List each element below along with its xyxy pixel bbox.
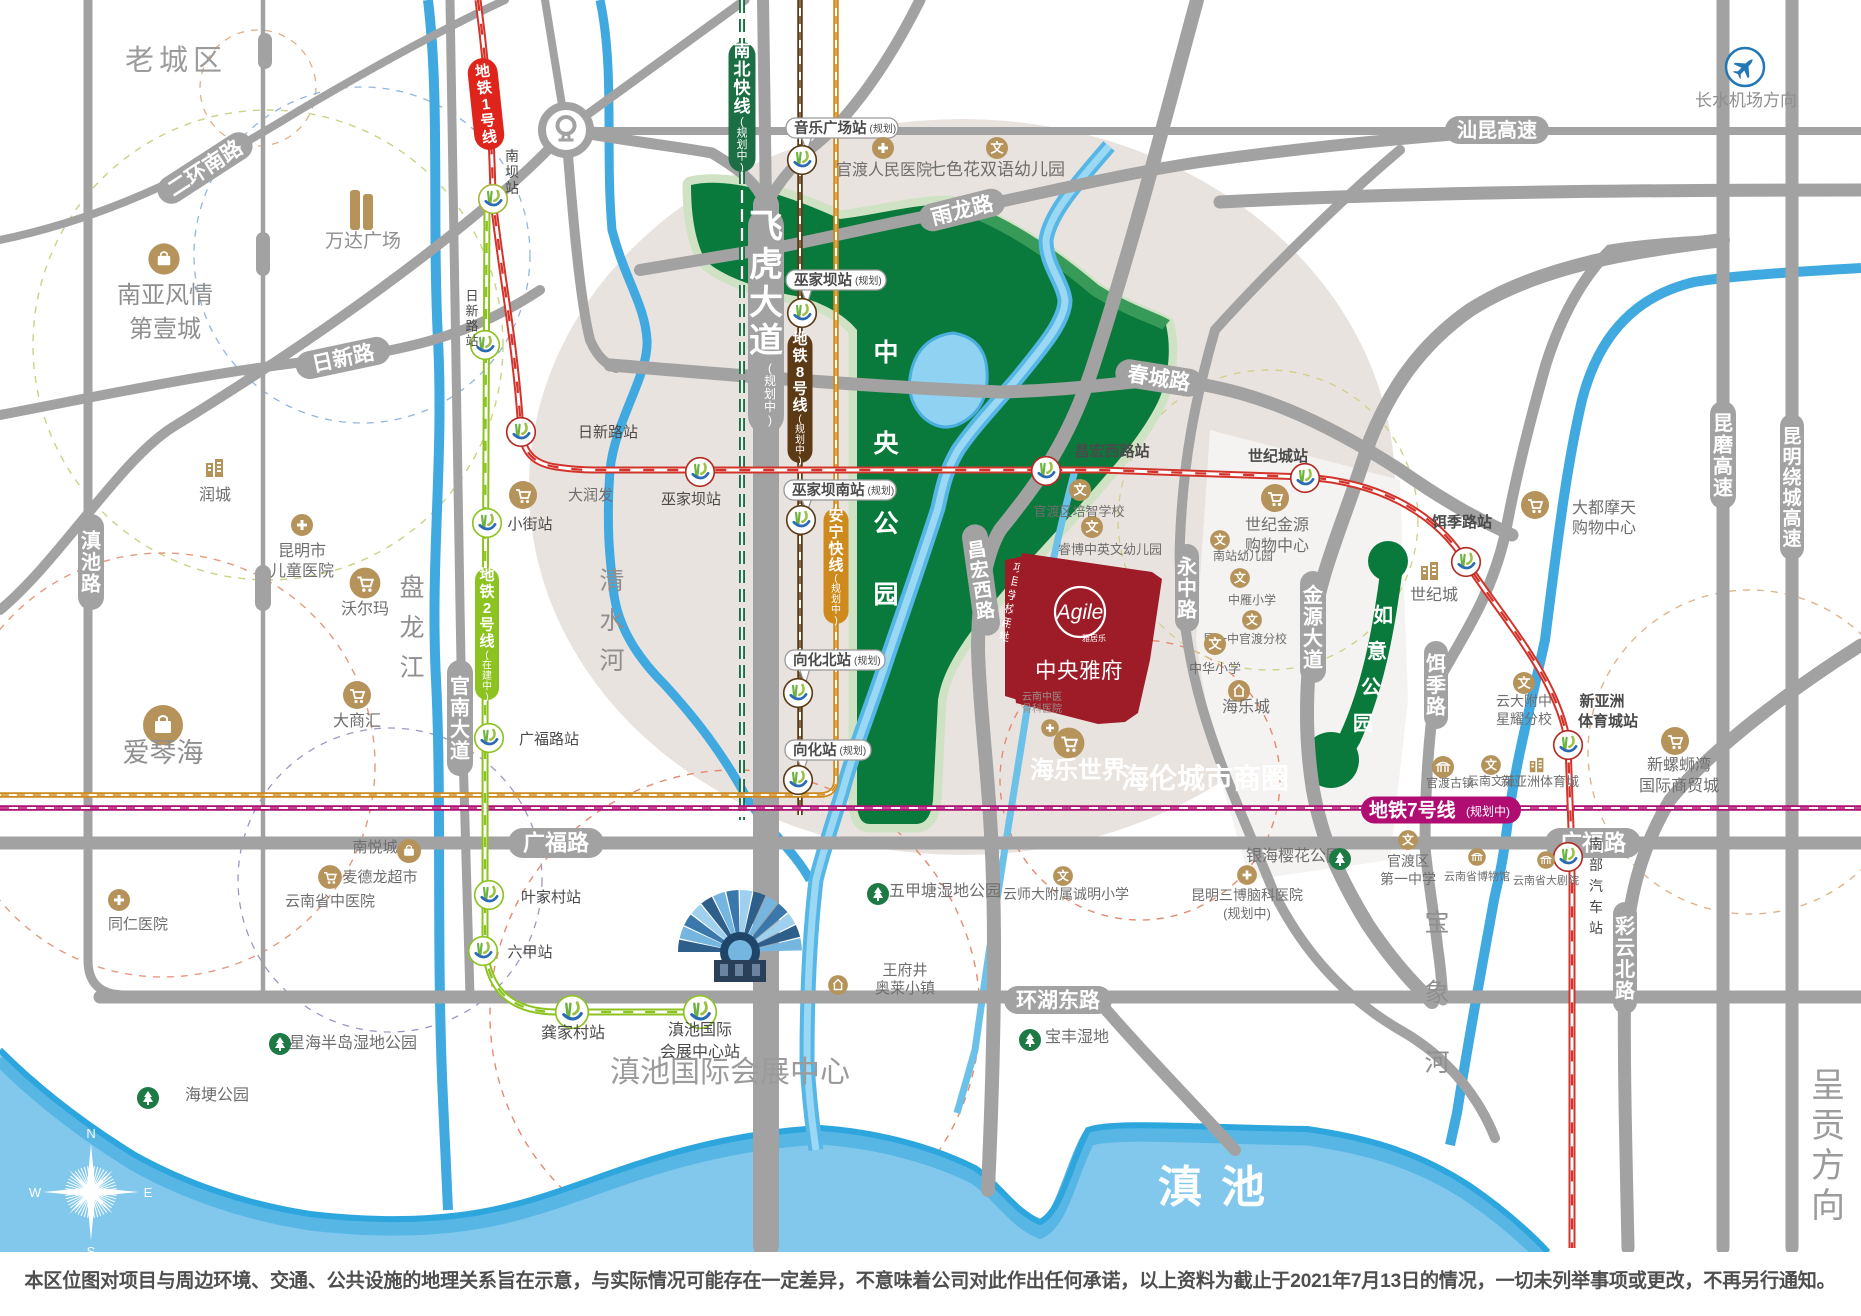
svg-text:小街站: 小街站 — [507, 516, 552, 533]
svg-text:广福路站: 广福路站 — [519, 731, 579, 748]
svg-text:广福路: 广福路 — [523, 831, 590, 856]
svg-text:(规划中): (规划中) — [1466, 804, 1510, 819]
svg-text:巫家坝南站: 巫家坝南站 — [792, 481, 865, 499]
svg-text:): ) — [740, 162, 744, 174]
svg-text:海埂公园: 海埂公园 — [185, 1086, 249, 1104]
svg-text:(规划): (规划) — [854, 654, 881, 667]
svg-text:快: 快 — [734, 77, 752, 97]
svg-text:南悦城: 南悦城 — [352, 839, 397, 856]
svg-text:源: 源 — [1303, 605, 1323, 628]
svg-text:): ) — [834, 616, 837, 627]
svg-text:银海樱花公园: 银海樱花公园 — [1246, 847, 1342, 865]
svg-text:骨科医院: 骨科医院 — [1022, 702, 1062, 715]
svg-text:盘: 盘 — [399, 574, 424, 602]
svg-text:中华小学: 中华小学 — [1189, 661, 1241, 676]
svg-text:Agile: Agile — [1055, 601, 1104, 624]
svg-text:池: 池 — [81, 551, 101, 574]
svg-text:海乐世界: 海乐世界 — [1030, 756, 1126, 784]
svg-text:官渡区培智学校: 官渡区培智学校 — [1033, 504, 1124, 519]
svg-text:宝丰湿地: 宝丰湿地 — [1045, 1028, 1109, 1046]
svg-text:龙: 龙 — [399, 614, 424, 642]
svg-text:大都摩天: 大都摩天 — [1572, 499, 1636, 517]
svg-text:江: 江 — [399, 654, 424, 682]
svg-text:北: 北 — [734, 60, 751, 79]
svg-text:世纪金源: 世纪金源 — [1245, 516, 1309, 534]
svg-text:第一中学: 第一中学 — [1380, 871, 1436, 887]
svg-text:星海半岛湿地公园: 星海半岛湿地公园 — [289, 1034, 417, 1052]
svg-text:大商汇: 大商汇 — [333, 712, 381, 730]
svg-text:南: 南 — [505, 148, 519, 164]
svg-text:规: 规 — [831, 582, 841, 595]
svg-text:体育城站: 体育城站 — [1578, 712, 1638, 730]
svg-text:云师大附属诚明小学: 云师大附属诚明小学 — [1003, 886, 1129, 902]
svg-text:8: 8 — [796, 364, 804, 381]
svg-text:昆: 昆 — [1713, 412, 1733, 435]
svg-text:方: 方 — [1811, 1147, 1845, 1185]
svg-text:云南省大剧院: 云南省大剧院 — [1513, 873, 1579, 887]
svg-text:明: 明 — [1782, 446, 1801, 468]
svg-text:地: 地 — [474, 62, 491, 81]
svg-text:爱琴海: 爱琴海 — [123, 738, 204, 768]
svg-text:划: 划 — [795, 433, 805, 446]
svg-text:号: 号 — [479, 617, 494, 634]
svg-text:公: 公 — [1361, 676, 1381, 699]
svg-text:规: 规 — [737, 125, 748, 139]
svg-text:新: 新 — [465, 304, 478, 319]
svg-text:划: 划 — [831, 593, 841, 606]
svg-text:车: 车 — [1589, 899, 1603, 915]
svg-text:季: 季 — [1425, 674, 1446, 697]
svg-text:宝: 宝 — [1424, 909, 1449, 937]
svg-text:中: 中 — [764, 399, 776, 414]
svg-text:2: 2 — [483, 600, 491, 617]
svg-text:六甲站: 六甲站 — [507, 944, 552, 961]
svg-text:路: 路 — [465, 319, 478, 334]
svg-text:润城: 润城 — [199, 486, 231, 504]
svg-text:(: ( — [768, 361, 772, 375]
svg-text:巫家坝站: 巫家坝站 — [661, 491, 721, 508]
svg-text:路: 路 — [1615, 978, 1636, 1002]
svg-text:央: 央 — [873, 430, 899, 458]
svg-text:(规划): (规划) — [855, 274, 882, 287]
svg-text:速: 速 — [1713, 476, 1733, 499]
svg-text:W: W — [29, 1185, 42, 1200]
svg-text:南亚风情: 南亚风情 — [117, 282, 213, 309]
svg-text:大: 大 — [1303, 627, 1323, 650]
svg-text:儿童医院: 儿童医院 — [270, 561, 334, 580]
svg-text:新亚洲: 新亚洲 — [1579, 692, 1624, 710]
svg-text:规: 规 — [795, 422, 805, 435]
svg-text:快: 快 — [828, 539, 844, 557]
svg-text:中: 中 — [737, 149, 748, 162]
svg-text:): ) — [768, 413, 772, 427]
svg-text:万达广场: 万达广场 — [325, 230, 401, 252]
svg-text:大: 大 — [749, 284, 783, 322]
svg-text:南: 南 — [450, 696, 470, 719]
svg-text:龚家村站: 龚家村站 — [541, 1024, 605, 1042]
svg-text:(: ( — [740, 116, 744, 128]
svg-text:中: 中 — [873, 339, 898, 367]
svg-text:高: 高 — [1782, 506, 1801, 529]
svg-text:昌宏西路站: 昌宏西路站 — [1074, 442, 1149, 460]
svg-text:新亚洲体育城: 新亚洲体育城 — [1501, 774, 1579, 789]
svg-text:部: 部 — [1589, 857, 1603, 873]
svg-text:滇: 滇 — [1158, 1163, 1202, 1212]
svg-text:永: 永 — [1176, 555, 1197, 579]
svg-text:叶家村站: 叶家村站 — [521, 889, 581, 906]
svg-text:南站幼儿园: 南站幼儿园 — [1213, 548, 1273, 563]
svg-text:路: 路 — [81, 572, 102, 596]
svg-text:音乐广场站: 音乐广场站 — [794, 119, 867, 137]
svg-text:象: 象 — [1424, 979, 1449, 1007]
svg-text:同仁医院: 同仁医院 — [108, 915, 168, 933]
svg-text:线: 线 — [828, 556, 843, 574]
svg-text:园: 园 — [1353, 713, 1373, 735]
svg-text:河: 河 — [599, 647, 624, 675]
svg-text:池: 池 — [1221, 1163, 1265, 1212]
svg-text:汽: 汽 — [1589, 878, 1603, 894]
svg-text:划: 划 — [764, 387, 776, 401]
svg-text:速: 速 — [1782, 527, 1801, 550]
svg-text:绕: 绕 — [1782, 465, 1801, 488]
svg-text:城: 城 — [1782, 486, 1801, 509]
svg-text:沃尔玛: 沃尔玛 — [341, 600, 389, 618]
svg-text:路: 路 — [1426, 695, 1447, 719]
svg-text:购物中心: 购物中心 — [1572, 519, 1636, 537]
svg-text:呈: 呈 — [1811, 1067, 1845, 1105]
svg-text:规: 规 — [764, 373, 776, 388]
svg-text:水: 水 — [599, 607, 624, 635]
svg-text:道: 道 — [1303, 647, 1323, 671]
svg-text:公: 公 — [873, 510, 898, 538]
svg-text:划: 划 — [737, 138, 748, 151]
svg-text:世纪城站: 世纪城站 — [1248, 447, 1308, 465]
svg-text:中: 中 — [831, 603, 841, 616]
svg-text:号: 号 — [792, 381, 807, 398]
svg-text:铁: 铁 — [476, 78, 493, 97]
svg-text:道: 道 — [749, 322, 783, 360]
svg-text:环湖东路: 环湖东路 — [1016, 988, 1101, 1012]
svg-text:道: 道 — [450, 738, 470, 762]
svg-text:滇: 滇 — [81, 529, 101, 553]
svg-text:大润发: 大润发 — [568, 487, 613, 504]
svg-text:彩: 彩 — [1614, 915, 1635, 938]
svg-text:云: 云 — [1615, 937, 1635, 959]
svg-text:园: 园 — [873, 581, 898, 609]
svg-text:磨: 磨 — [1713, 432, 1733, 456]
svg-text:宏: 宏 — [969, 557, 991, 582]
svg-text:中: 中 — [1177, 576, 1197, 600]
svg-text:向化站: 向化站 — [793, 741, 837, 759]
svg-text:七色花双语幼儿园: 七色花双语幼儿园 — [929, 160, 1065, 179]
svg-text:地: 地 — [792, 330, 807, 348]
svg-text:滇池国际: 滇池国际 — [668, 1021, 732, 1039]
svg-text:线: 线 — [734, 96, 751, 116]
svg-text:官: 官 — [450, 674, 470, 698]
svg-text:官渡区: 官渡区 — [1387, 853, 1429, 869]
svg-text:线: 线 — [792, 396, 807, 414]
svg-text:铁: 铁 — [792, 347, 807, 365]
svg-text:安: 安 — [828, 506, 843, 524]
svg-text:(规划): (规划) — [868, 484, 895, 497]
svg-text:大: 大 — [450, 718, 470, 741]
svg-text:意: 意 — [1367, 639, 1387, 663]
svg-text:金: 金 — [1302, 583, 1324, 607]
svg-text:中: 中 — [795, 443, 805, 456]
svg-text:宁: 宁 — [828, 523, 843, 541]
svg-text:北: 北 — [1615, 958, 1635, 981]
svg-text:高: 高 — [1713, 454, 1733, 478]
svg-text:昆明三博脑科医院: 昆明三博脑科医院 — [1191, 887, 1303, 903]
svg-text:奥莱小镇: 奥莱小镇 — [875, 980, 935, 997]
svg-text:E: E — [144, 1185, 153, 1200]
svg-text:滇池国际会展中心: 滇池国际会展中心 — [610, 1056, 850, 1089]
svg-text:老城区: 老城区 — [125, 44, 227, 77]
svg-text:线: 线 — [479, 632, 494, 650]
svg-text:虎: 虎 — [749, 246, 783, 284]
svg-text:南: 南 — [1589, 836, 1603, 852]
svg-text:(规划): (规划) — [840, 744, 867, 757]
svg-text:官渡人民医院: 官渡人民医院 — [836, 161, 932, 179]
svg-text:云大附中: 云大附中 — [1496, 693, 1552, 709]
svg-text:五甲塘湿地公园: 五甲塘湿地公园 — [889, 882, 1001, 900]
svg-text:N: N — [86, 1126, 95, 1141]
svg-text:贡: 贡 — [1811, 1107, 1845, 1145]
svg-text:(规划中): (规划中) — [1223, 906, 1271, 921]
svg-text:昆: 昆 — [1782, 425, 1801, 447]
svg-text:日新路站: 日新路站 — [578, 424, 638, 441]
svg-text:饵季路站: 饵季路站 — [1431, 513, 1492, 531]
svg-text:汕昆高速: 汕昆高速 — [1457, 118, 1537, 142]
svg-text:星耀分校: 星耀分校 — [1496, 711, 1552, 727]
svg-text:本区位图对项目与周边环境、交通、公共设施的地理关系旨在示意，: 本区位图对项目与周边环境、交通、公共设施的地理关系旨在示意，与实际情况可能存在一… — [24, 1269, 1835, 1292]
svg-text:清: 清 — [599, 567, 624, 595]
svg-text:): ) — [798, 456, 801, 467]
svg-text:(规划): (规划) — [870, 122, 897, 135]
svg-text:日: 日 — [465, 289, 478, 304]
svg-text:): ) — [485, 692, 488, 703]
svg-text:如: 如 — [1373, 603, 1393, 627]
svg-text:飞: 飞 — [749, 208, 783, 246]
svg-text:中雁小学: 中雁小学 — [1228, 592, 1276, 607]
svg-text:线: 线 — [481, 127, 498, 146]
svg-text:河: 河 — [1424, 1049, 1449, 1077]
svg-text:南: 南 — [734, 40, 751, 60]
svg-text:新螺蛳湾: 新螺蛳湾 — [1647, 756, 1711, 774]
svg-text:站: 站 — [465, 334, 478, 349]
svg-text:睿博中英文幼儿园: 睿博中英文幼儿园 — [1058, 542, 1162, 557]
svg-text:雅居乐: 雅居乐 — [1082, 633, 1106, 643]
svg-text:在: 在 — [482, 659, 492, 671]
svg-text:地铁7号线: 地铁7号线 — [1369, 799, 1456, 822]
svg-text:向: 向 — [1811, 1187, 1845, 1225]
svg-text:中: 中 — [482, 679, 492, 692]
svg-text:饵: 饵 — [1425, 652, 1446, 676]
svg-text:麦德龙超市: 麦德龙超市 — [342, 868, 417, 886]
svg-text:路: 路 — [1177, 598, 1198, 622]
svg-text:向化北站: 向化北站 — [793, 651, 851, 669]
svg-text:坝: 坝 — [505, 164, 519, 180]
svg-text:站: 站 — [505, 180, 519, 196]
svg-text:世纪城: 世纪城 — [1410, 586, 1458, 604]
svg-text:云南中医: 云南中医 — [1022, 690, 1062, 703]
svg-text:1: 1 — [481, 96, 491, 114]
svg-text:长水机场方向: 长水机场方向 — [1695, 91, 1797, 110]
svg-text:海伦城市商圈: 海伦城市商圈 — [1121, 762, 1289, 794]
svg-text:地: 地 — [479, 566, 494, 584]
svg-text:王府井: 王府井 — [882, 962, 927, 979]
svg-text:中央雅府: 中央雅府 — [1035, 659, 1123, 683]
svg-text:海乐城: 海乐城 — [1222, 698, 1270, 716]
svg-text:站: 站 — [1589, 920, 1603, 936]
svg-text:建: 建 — [482, 669, 492, 682]
svg-text:云南省博物馆: 云南省博物馆 — [1444, 869, 1510, 883]
svg-text:铁: 铁 — [479, 583, 494, 601]
svg-text:第壹城: 第壹城 — [129, 316, 201, 343]
svg-text:昆明市: 昆明市 — [278, 542, 326, 560]
svg-text:巫家坝站: 巫家坝站 — [794, 271, 852, 289]
svg-text:云南省中医院: 云南省中医院 — [285, 892, 375, 910]
svg-text:国际商贸城: 国际商贸城 — [1639, 777, 1719, 795]
